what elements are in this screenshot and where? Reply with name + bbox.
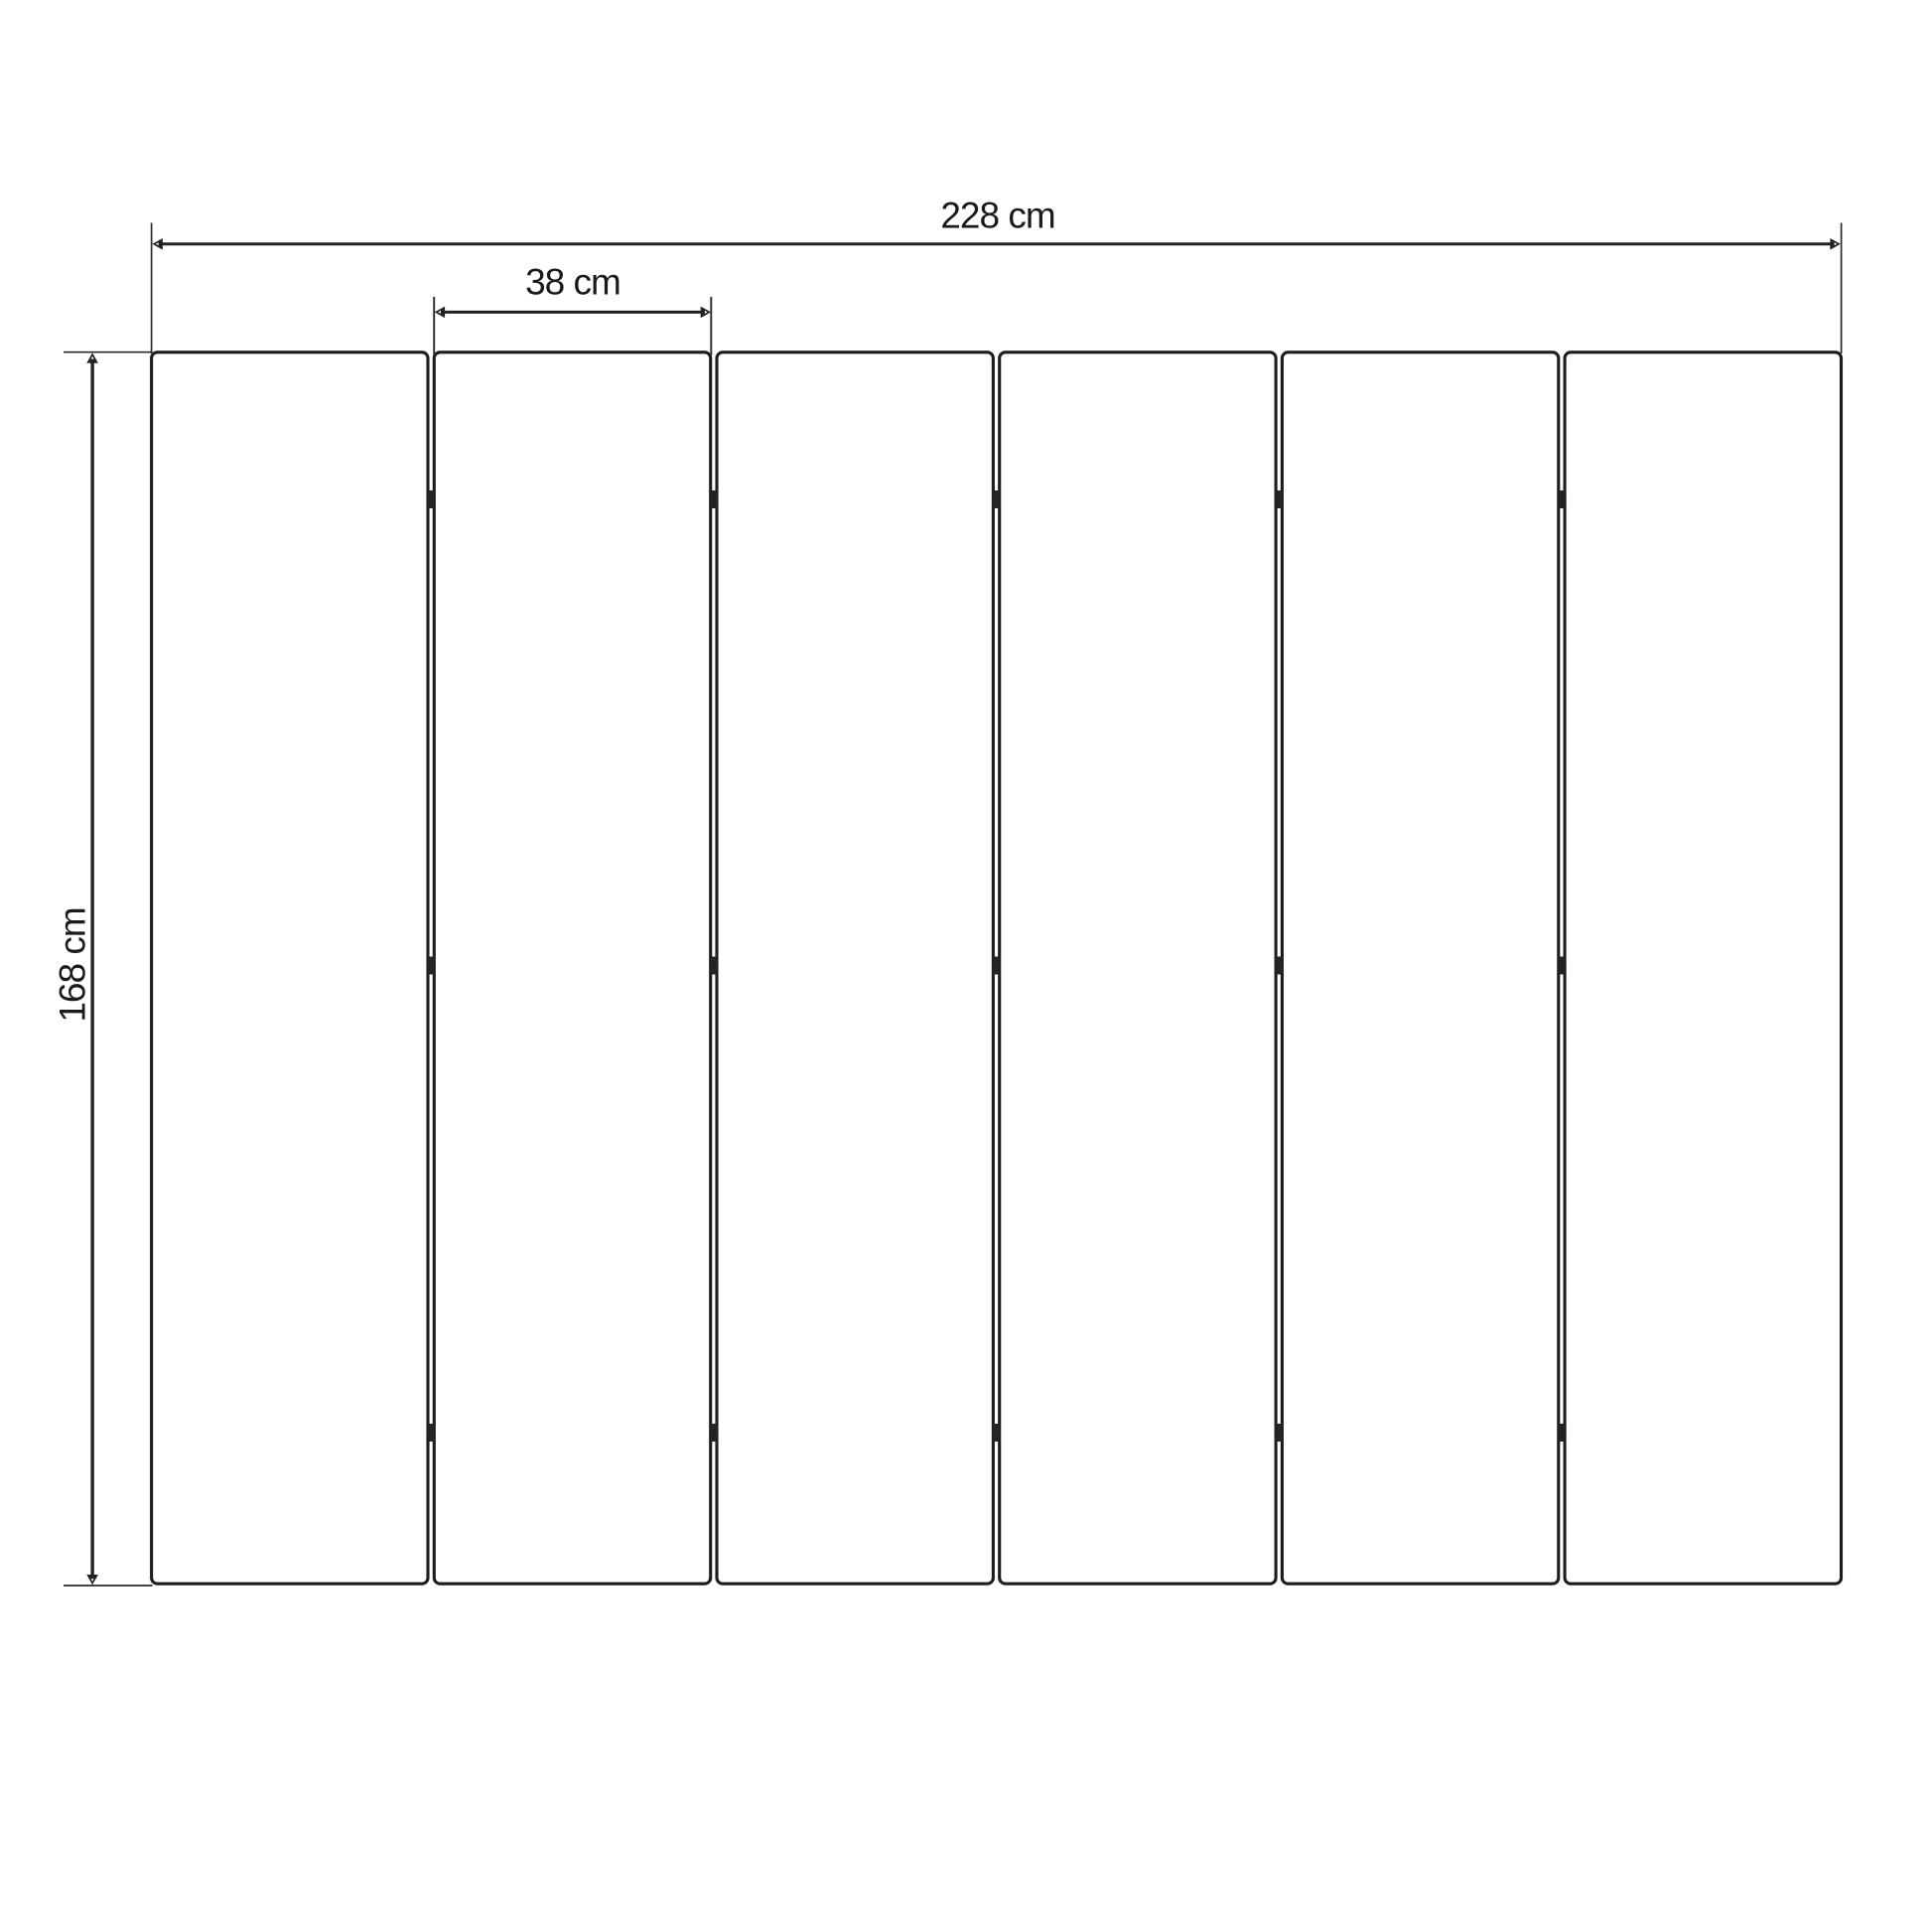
svg-text:228 cm: 228 cm [940,196,1054,236]
svg-text:38 cm: 38 cm [525,262,621,303]
svg-text:168 cm: 168 cm [53,907,93,1022]
